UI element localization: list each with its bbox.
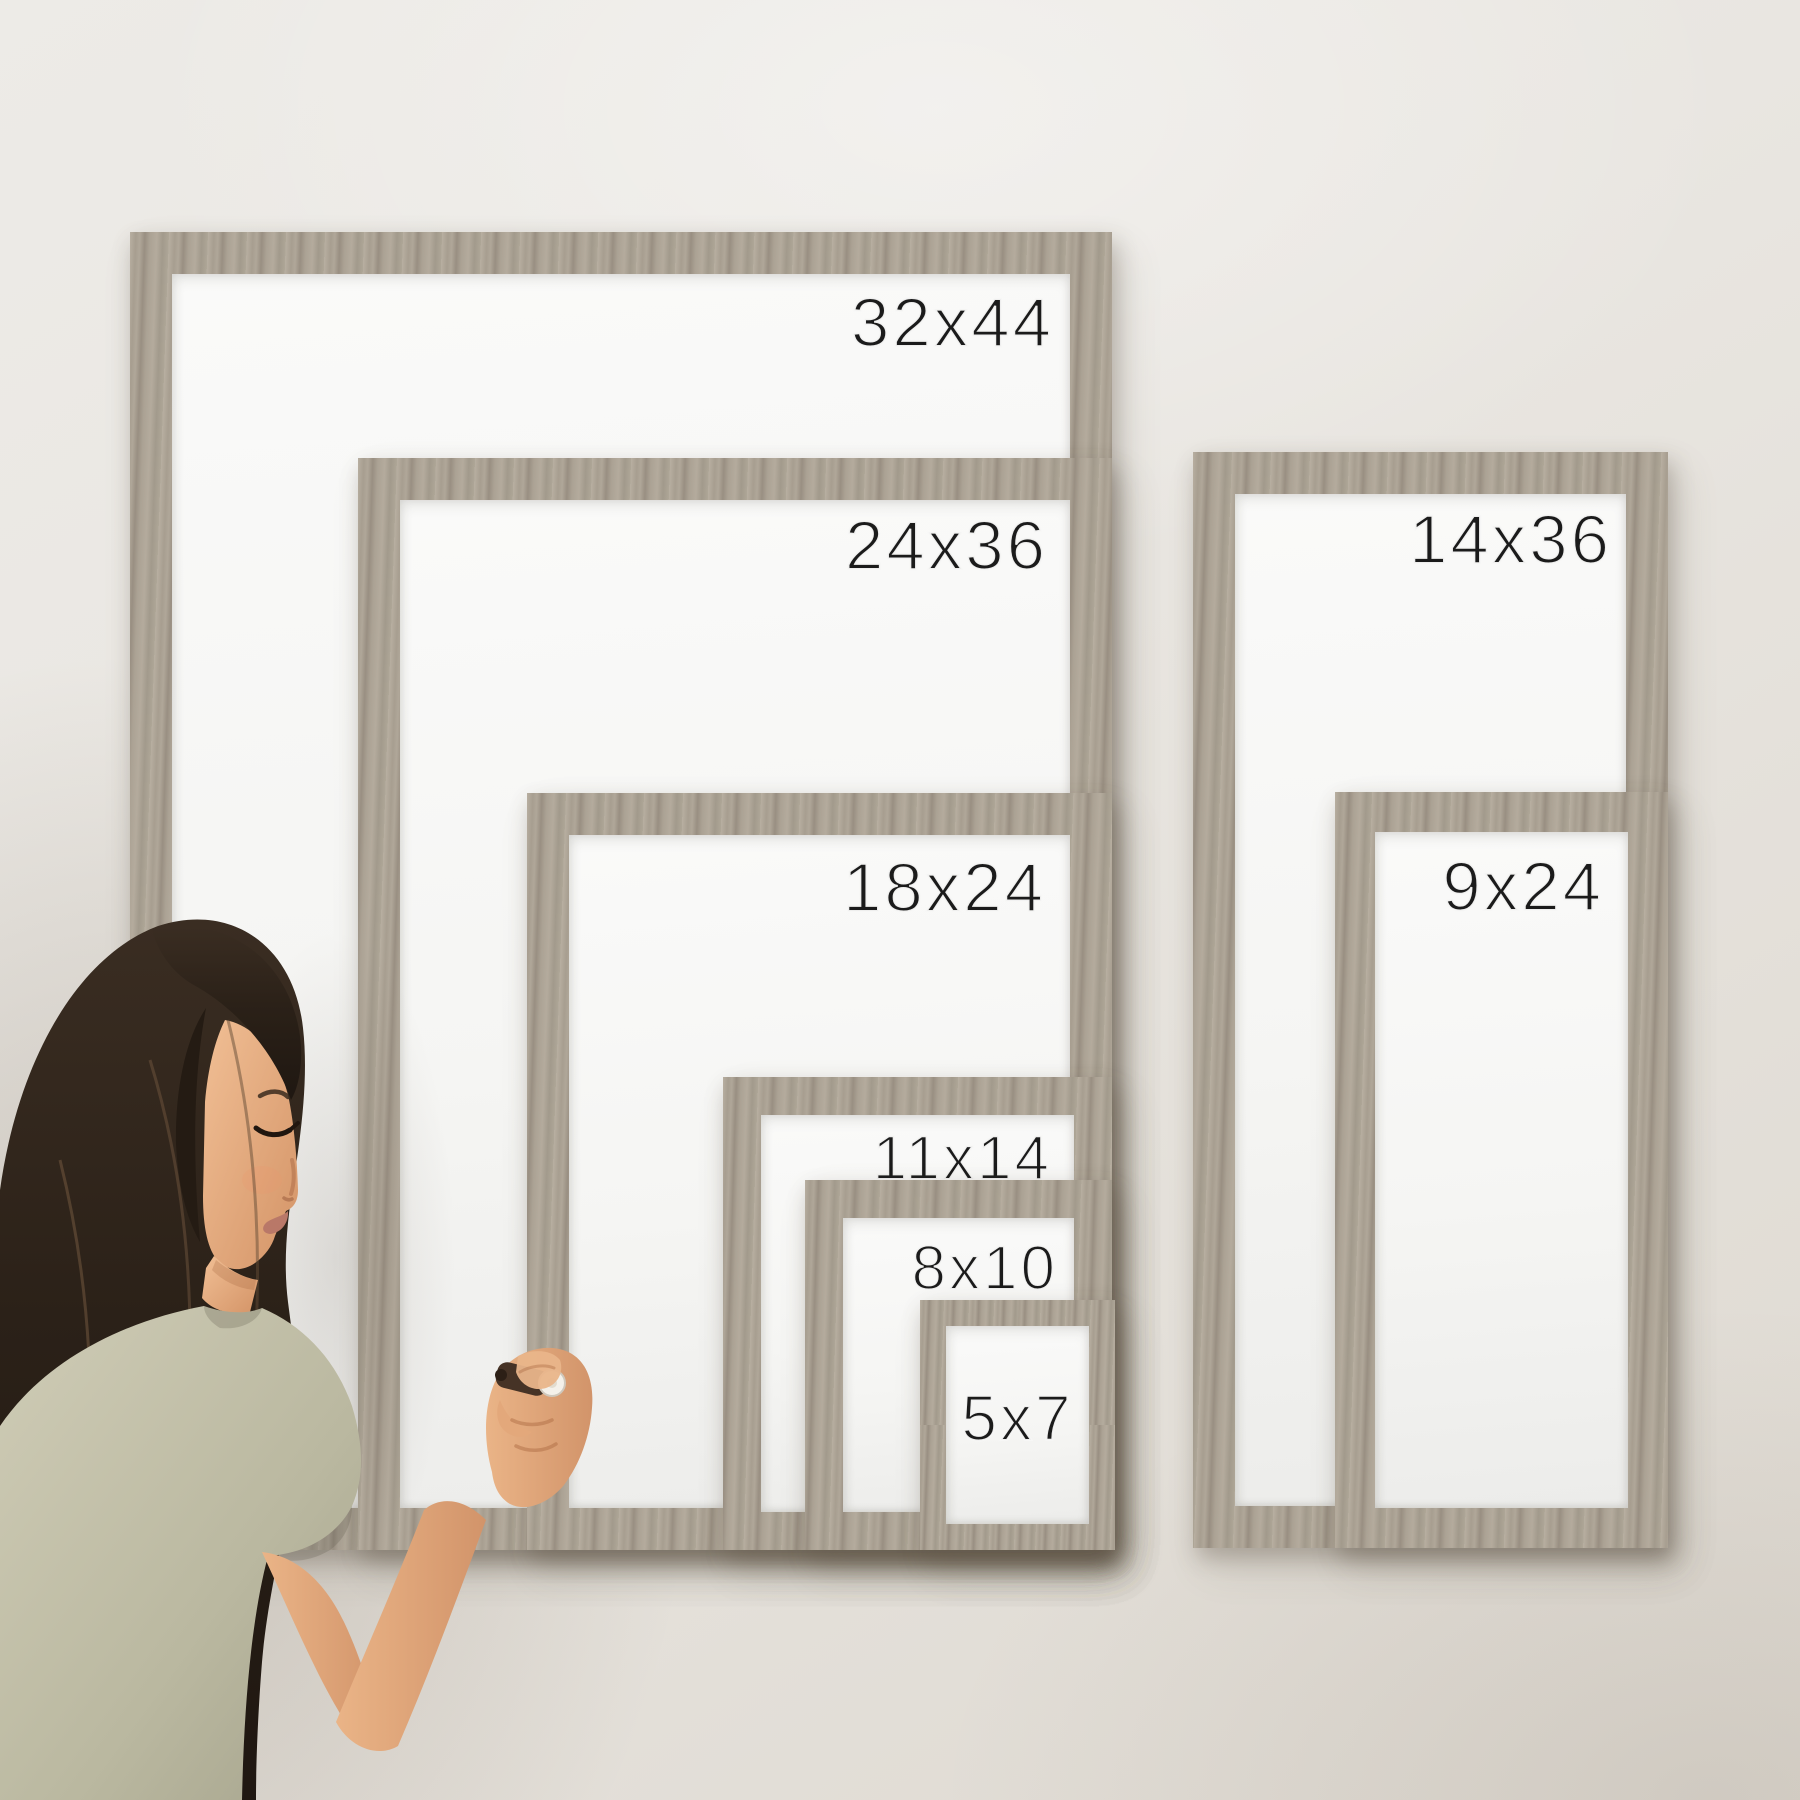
woman-cheek-blush — [242, 1166, 282, 1194]
frame-size-label: 24x36 — [400, 511, 1070, 580]
frame-9x24: 9x24 — [1335, 792, 1668, 1548]
frame-size-label: 32x44 — [172, 288, 1070, 357]
frame-size-label: 9x24 — [1375, 852, 1628, 921]
scene: 32x4424x3618x2411x148x105x714x369x24 — [0, 0, 1800, 1800]
marker-pen-tip — [495, 1369, 507, 1381]
woman-writing — [0, 860, 660, 1800]
woman-nostril — [284, 1198, 292, 1200]
frame-size-label: 14x36 — [1235, 505, 1626, 574]
whiteboard-surface: 9x24 — [1375, 832, 1628, 1508]
whiteboard-surface: 5x7 — [946, 1326, 1089, 1524]
frame-5x7: 5x7 — [920, 1300, 1115, 1550]
frame-size-label: 8x10 — [843, 1238, 1074, 1300]
frame-size-label: 5x7 — [946, 1386, 1089, 1450]
